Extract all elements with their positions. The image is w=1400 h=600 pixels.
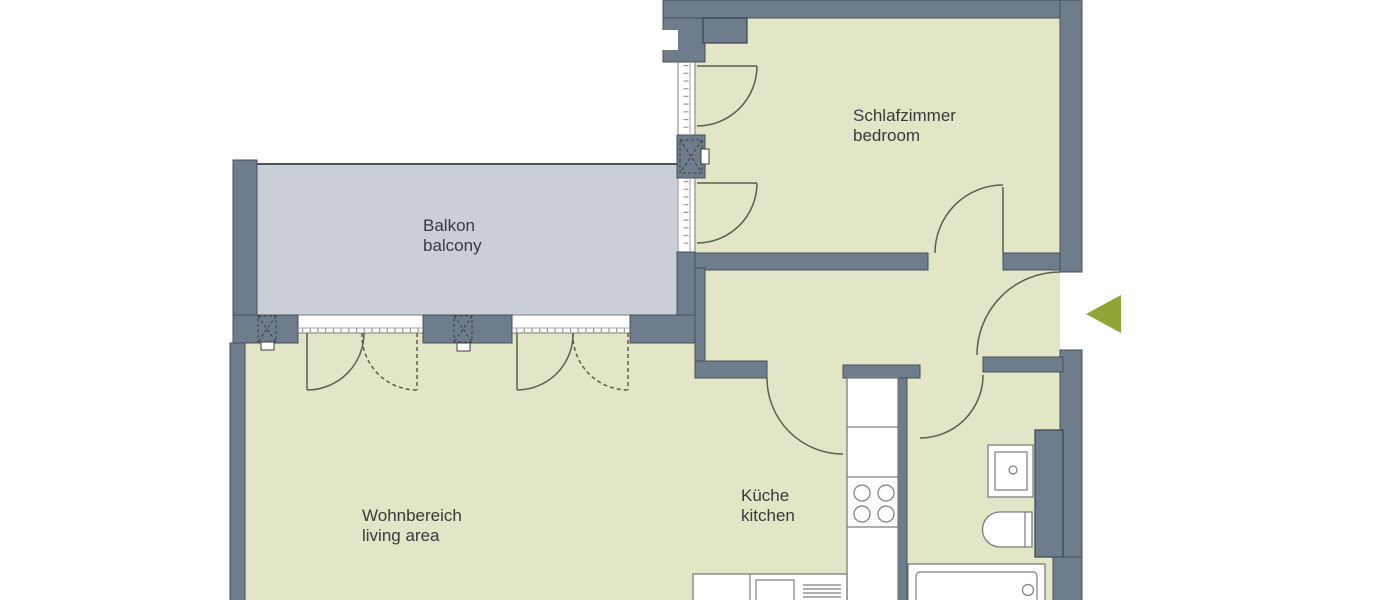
toilet [983,512,1033,547]
bathtub [908,564,1045,600]
wall-segment [1053,557,1082,600]
wall-segment [423,315,512,343]
wall-segment [843,365,920,378]
floor-plan: Schlafzimmer bedroom Balkon balcony Wohn… [0,0,1400,600]
shaft [1035,430,1063,557]
entrance-arrow [1086,295,1121,333]
wall-segment [663,0,1082,18]
balcony-label: Balkon balcony [423,216,482,256]
living-area-label-de: Wohnbereich [362,506,462,526]
wall-notch [655,30,678,50]
wall-segment [233,315,298,343]
living-area-label: Wohnbereich living area [362,506,462,546]
balcony-label-de: Balkon [423,216,482,236]
bedroom-label-de: Schlafzimmer [853,106,956,126]
bedroom-label: Schlafzimmer bedroom [853,106,956,146]
chimney-block [703,18,747,43]
living-area-label-en: living area [362,526,462,546]
wall-segment [677,252,695,317]
wall-segment [1003,253,1060,270]
floor-plan-drawing [0,0,1400,600]
kitchen-label: Küche kitchen [741,486,795,526]
wall-segment [983,357,1063,372]
living-kitchen-floor [245,333,907,600]
kitchen-counter [693,574,847,600]
wall-segment [695,361,767,378]
bedroom-label-en: bedroom [853,126,956,146]
wall-segment [233,160,257,315]
balcony-label-en: balcony [423,236,482,256]
kitchen-label-en: kitchen [741,506,795,526]
wall-segment [898,378,907,600]
washbasin [988,445,1033,497]
wall-segment [1060,0,1082,272]
wall-segment [695,253,928,270]
wall-segment [230,343,245,600]
kitchen-label-de: Küche [741,486,795,506]
wall-segment [630,315,695,343]
window [298,315,423,333]
